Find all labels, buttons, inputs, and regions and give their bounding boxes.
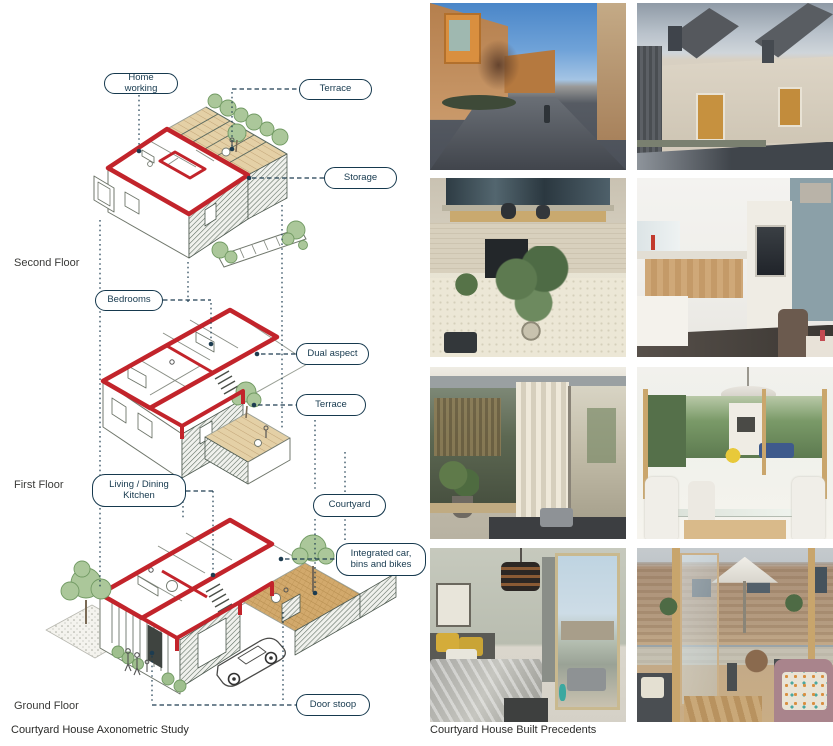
callout-label: Terrace <box>315 400 347 411</box>
planting-strip <box>637 140 766 147</box>
callout-label: Storage <box>344 173 377 184</box>
planting-bed <box>442 95 516 110</box>
callout-terrace-second: Terrace <box>299 79 372 100</box>
dark-sofa <box>444 332 477 353</box>
small-plant <box>454 271 479 298</box>
balcony-deck <box>450 211 607 222</box>
brown-chair <box>778 309 807 357</box>
callout-door-stoop: Door stoop <box>296 694 370 716</box>
brick-house-right <box>597 3 626 140</box>
axonometric-drawing <box>0 0 420 746</box>
framed-print <box>436 583 471 627</box>
first-floor-block <box>103 310 309 484</box>
island-unit <box>637 296 688 346</box>
callout-label: Courtyard <box>329 500 371 511</box>
callout-storage: Storage <box>324 167 397 189</box>
photo-dining-room <box>637 367 833 539</box>
bistro-table <box>516 318 545 345</box>
balcony-chair <box>501 203 517 219</box>
label-first-floor: First Floor <box>14 479 64 491</box>
pedestrian <box>544 105 550 123</box>
orange-door-panel <box>696 93 725 140</box>
upper-window <box>668 26 682 51</box>
drink-glass <box>820 330 825 341</box>
bed-end <box>504 698 547 722</box>
callout-dual-aspect: Dual aspect <box>296 343 369 365</box>
palm-plants <box>493 246 571 325</box>
photo-street-view <box>430 3 626 170</box>
label-second-floor: Second Floor <box>14 257 79 269</box>
white-chair-right <box>792 477 825 539</box>
photo-bedroom <box>430 548 626 722</box>
photo-mews-houses <box>637 3 833 170</box>
oven <box>755 225 786 277</box>
potted-tree <box>659 595 679 618</box>
bare-tree <box>469 30 528 100</box>
patterned-cushion-small <box>641 677 665 698</box>
callout-label: Living / Dining Kitchen <box>99 480 179 502</box>
callout-courtyard: Courtyard <box>313 494 386 517</box>
parasol-pole <box>743 581 746 633</box>
hedge <box>647 395 686 467</box>
callout-label: Bedrooms <box>107 295 150 306</box>
wood-table <box>684 520 786 539</box>
callout-label: Door stoop <box>310 700 356 711</box>
cream-brick-facade <box>637 56 833 143</box>
glass-table <box>664 509 805 517</box>
callout-label: Home working <box>111 73 171 95</box>
caption-built-precedents: Courtyard House Built Precedents <box>430 724 596 736</box>
photo-kitchen <box>637 178 833 357</box>
callout-home-working: Home working <box>104 73 178 94</box>
upper-window-2 <box>762 40 774 63</box>
potted-tree-2 <box>784 592 804 615</box>
open-glass-door <box>680 553 719 706</box>
deck-boards <box>430 503 516 513</box>
dining-table-edge <box>806 336 833 357</box>
grey-cushion <box>540 508 573 527</box>
callout-label: Terrace <box>320 84 352 95</box>
label-ground-floor: Ground Floor <box>14 700 79 712</box>
drum-pendant <box>501 562 540 592</box>
window-glass <box>449 20 471 52</box>
orange-door-panel-2 <box>778 87 802 128</box>
terrace-lounger <box>567 668 606 691</box>
fern-plant <box>436 460 479 498</box>
page: Home working Terrace Storage Bedrooms Du… <box>0 0 833 746</box>
callout-label: Integrated car, bins and bikes <box>343 549 419 571</box>
garden-reflection <box>587 408 616 463</box>
callout-living-dining-kitchen: Living / Dining Kitchen <box>92 474 186 507</box>
second-floor-block <box>94 94 288 258</box>
fire-slot <box>737 417 755 432</box>
kitchen-window <box>637 221 680 251</box>
callout-integrated-car: Integrated car, bins and bikes <box>336 543 426 576</box>
patterned-cushion <box>782 672 827 710</box>
bamboo-screen <box>434 398 501 456</box>
roman-blind <box>800 183 831 203</box>
white-chair-left <box>645 477 678 539</box>
callout-label: Dual aspect <box>307 349 357 360</box>
caption-axonometric-study: Courtyard House Axonometric Study <box>11 724 189 736</box>
bottle <box>651 235 655 249</box>
photo-courtyard-above <box>430 178 626 357</box>
curtain <box>516 382 569 523</box>
glazed-doors <box>446 178 611 207</box>
door-frame-left <box>672 548 680 722</box>
callout-terrace-first: Terrace <box>296 394 366 416</box>
timber-mullion <box>762 389 766 475</box>
rooftops-view <box>561 621 614 640</box>
balcony-chair-2 <box>536 205 550 219</box>
curtain-panel <box>542 557 556 682</box>
worktop <box>637 251 751 258</box>
photo-roof-terrace <box>637 548 833 722</box>
photo-courtyard-from-living <box>430 367 626 539</box>
teal-vase <box>559 684 566 701</box>
yellow-flowers <box>723 448 743 463</box>
decking <box>684 696 762 722</box>
timber-cabinets <box>645 259 743 298</box>
callout-bedrooms: Bedrooms <box>95 290 163 311</box>
metal-chair <box>727 663 737 691</box>
